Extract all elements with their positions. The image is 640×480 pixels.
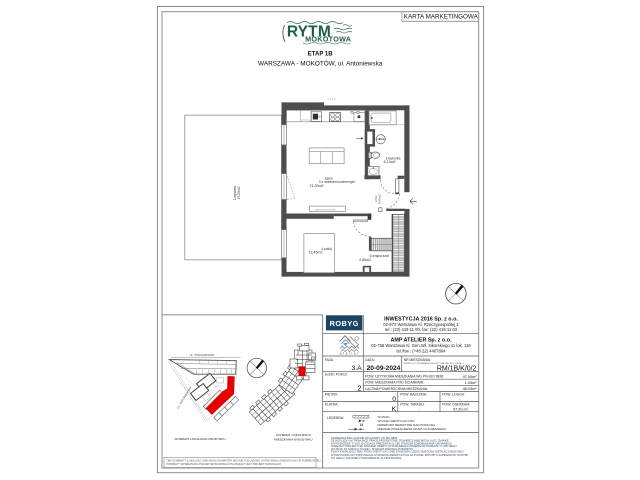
svg-text:20-09-2024: 20-09-2024 [367,365,401,372]
svg-text:48.03m²: 48.03m² [463,387,478,391]
svg-text:atelier: atelier [340,352,360,356]
svg-text:K: K [391,406,396,413]
svg-text:PIĘTRO:: PIĘTRO: [325,393,339,397]
svg-text:OBA SCHEMATY (LOKALIZACYJNE) M: OBA SCHEMATY (LOKALIZACYJNE) MAJĄ CHARAK… [167,459,321,462]
svg-text:11.45m2: 11.45m2 [309,250,323,254]
svg-text:ILOŚĆ POKOI:: ILOŚĆ POKOI: [325,372,348,377]
svg-text:UL. PODJAZDOWA: UL. PODJAZDOWA [190,353,215,357]
svg-text:ETAP 1B: ETAP 1B [308,51,333,57]
svg-text:1.03m²: 1.03m² [465,381,478,385]
svg-text:MIEJSCE PODŁĄCZENIA OKAPU KUCH: MIEJSCE PODŁĄCZENIA OKAPU KUCHENNEGO [378,427,447,431]
svg-text:WARSZAWA - MOKOTÓW, ul. Antoni: WARSZAWA - MOKOTÓW, ul. Antoniewska [258,58,383,67]
svg-text:2.86m2: 2.86m2 [359,258,371,262]
svg-text:6.14m2: 6.14m2 [384,160,396,164]
svg-text:FAZA:: FAZA: [325,358,334,362]
svg-text:4.pokój: 4.pokój [321,247,332,251]
svg-text:tel.: (22) 419 11 00, fax: (22: tel.: (22) 419 11 00, fax: (22) 419 11 0… [385,327,458,332]
svg-text:POW. TARASU:: POW. TARASU: [400,403,424,407]
svg-text:ŁĄCZNA POWIERZCHNIA MIESZKANIA: ŁĄCZNA POWIERZCHNIA MIESZKANIA: [365,387,428,391]
svg-text:47.00m²: 47.00m² [463,375,478,379]
svg-text:KLATKA:: KLATKA: [325,403,339,407]
svg-text:21.30m2: 21.30m2 [310,184,324,188]
svg-text:POW. BALKONU:: POW. BALKONU: [400,393,427,397]
svg-text:NR MIESZKANIA:: NR MIESZKANIA: [404,358,431,362]
svg-text:KARTA MARKETINGOWA: KARTA MARKETINGOWA [404,14,479,21]
svg-text:-: - [328,451,329,454]
svg-text:RM/1B/K/0/2: RM/1B/K/0/2 [437,365,477,372]
svg-text:MIESZKANIA W BUDYNKU: MIESZKANIA W BUDYNKU [274,437,312,441]
svg-text:MOKOTOWA: MOKOTOWA [305,35,351,44]
svg-text:3.z aneksem kuchennym: 3.z aneksem kuchennym [319,180,356,184]
svg-text:2: 2 [357,383,361,392]
svg-text:DATA:: DATA: [365,358,375,362]
svg-text:POW. MIESZKANIA POD ŚCIANKAMI:: POW. MIESZKANIA POD ŚCIANKAMI: [365,380,424,385]
svg-text:37.20m2: 37.20m2 [237,186,241,199]
svg-text:5.wnęka szaf: 5.wnęka szaf [370,254,389,258]
svg-text:0.9 2.4: 0.9 2.4 [328,97,336,101]
svg-text:POMIĘDZY SCHEMATAMI A PROJEKTE: POMIĘDZY SCHEMATAMI A PROJEKTEM BUDOWLAN… [167,463,282,466]
svg-text:POW. OGRÓDKA:: POW. OGRÓDKA: [442,402,470,407]
svg-text:5.05m2: 5.05m2 [378,194,382,204]
svg-text:3.A: 3.A [352,365,362,372]
svg-text:LEGENDA:: LEGENDA: [327,416,344,420]
svg-text:SCHEMAT LOKALIZACJI BUDYNKU: SCHEMAT LOKALIZACJI BUDYNKU [174,437,225,441]
svg-text:DO NIEGO, ZGODNIE Z DOKUMENTAC: DO NIEGO, ZGODNIE Z DOKUMENTACJĄ TECHNIC… [331,456,402,460]
svg-text:0: 0 [392,396,396,403]
svg-text:POW. LOGGII:: POW. LOGGII: [442,393,464,397]
svg-text:-: - [328,454,329,457]
svg-text:tel./fax : (+48 22) 4467864: tel./fax : (+48 22) 4467864 [396,348,446,353]
svg-text:ROBYG: ROBYG [330,319,359,328]
svg-text:37.20 m²: 37.20 m² [453,408,469,412]
svg-text:POW. UŻYTKOWA MIESZKANIA WG PN: POW. UŻYTKOWA MIESZKANIA WG PN-ISO 9836: [365,374,444,379]
